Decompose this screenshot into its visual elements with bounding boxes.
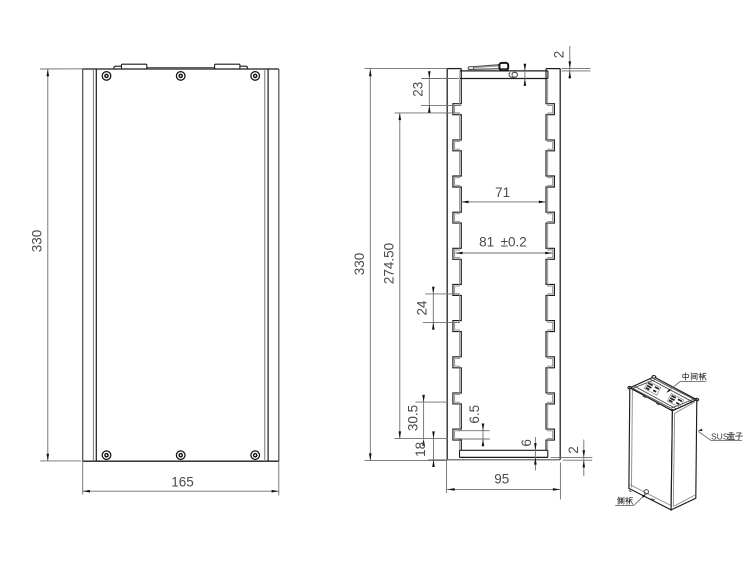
- svg-text:SUS: SUS: [711, 431, 729, 441]
- svg-text:2: 2: [551, 51, 566, 59]
- svg-text:18: 18: [413, 442, 428, 457]
- svg-text:24: 24: [415, 300, 430, 316]
- svg-text:71: 71: [495, 185, 510, 200]
- svg-text:330: 330: [30, 230, 45, 253]
- svg-text:95: 95: [494, 472, 509, 487]
- svg-text:81 ±0.2: 81 ±0.2: [479, 235, 527, 250]
- svg-text:6: 6: [506, 71, 521, 79]
- svg-text:2: 2: [566, 446, 581, 454]
- svg-text:23: 23: [411, 82, 426, 97]
- svg-text:6.5: 6.5: [467, 405, 482, 424]
- svg-text:274.50: 274.50: [382, 243, 397, 284]
- svg-text:6: 6: [519, 439, 534, 447]
- svg-text:165: 165: [171, 474, 194, 489]
- svg-text:30.5: 30.5: [406, 405, 421, 431]
- svg-text:330: 330: [352, 253, 367, 276]
